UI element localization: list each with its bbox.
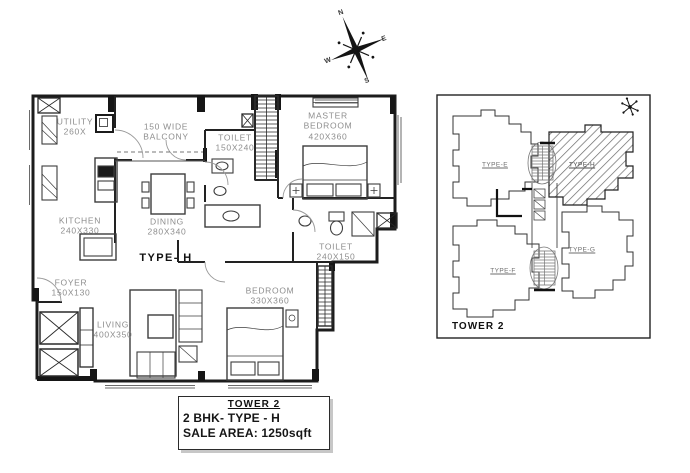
room-label-toilet-bottom: TOILET 240X150 xyxy=(317,242,356,263)
kitchen-dim: 240X330 xyxy=(59,226,101,236)
bedroom-dim: 330X360 xyxy=(246,296,295,306)
room-label-utility: UTILITY 260X xyxy=(57,117,94,138)
key-plan xyxy=(437,94,650,338)
keyplan-tower-label: TOWER 2 xyxy=(452,321,504,332)
living-dim: 400X350 xyxy=(94,330,133,340)
room-label-kitchen: KITCHEN 240X330 xyxy=(59,216,101,237)
toilet-top-dim: 150X240 xyxy=(216,143,255,153)
compass-rose xyxy=(317,5,397,91)
room-label-master-bedroom: MASTER BEDROOM 420X360 xyxy=(304,110,353,141)
kitchen-name: KITCHEN xyxy=(59,216,101,226)
balcony-line2: BALCONY xyxy=(143,132,189,142)
master-dim: 420X360 xyxy=(304,131,353,141)
toilet-bottom-dim: 240X150 xyxy=(317,252,356,262)
utility-dim: 260X xyxy=(57,127,94,137)
floorplan-linework xyxy=(0,0,690,473)
bedroom-name: BEDROOM xyxy=(246,286,295,296)
utility-appliance xyxy=(95,114,114,133)
keyplan-label-type-e: TYPE-E xyxy=(482,162,508,169)
toilet-bottom-name: TOILET xyxy=(317,242,356,252)
master-line2: BEDROOM xyxy=(304,121,353,131)
master-line1: MASTER xyxy=(304,110,353,120)
dining-name: DINING xyxy=(148,217,187,227)
floorplan-page: UTILITY 260X 150 WIDE BALCONY TOILET 150… xyxy=(0,0,690,473)
dining-dim: 280X340 xyxy=(148,227,187,237)
room-label-foyer: FOYER 150X130 xyxy=(52,278,91,299)
unit-info-box: TOWER 2 2 BHK- TYPE - H SALE AREA: 1250s… xyxy=(178,396,330,450)
staircase-right xyxy=(318,266,332,326)
room-label-dining: DINING 280X340 xyxy=(148,217,187,238)
room-label-balcony: 150 WIDE BALCONY xyxy=(143,122,189,143)
info-tower-label: TOWER 2 xyxy=(183,399,325,410)
keyplan-label-type-g: TYPE-G xyxy=(569,247,596,254)
staircase-top xyxy=(255,96,278,180)
keyplan-label-type-h: TYPE-H xyxy=(569,162,595,169)
room-label-living: LIVING 400X350 xyxy=(94,320,133,341)
foyer-dim: 150X130 xyxy=(52,288,91,298)
utility-name: UTILITY xyxy=(57,117,94,127)
living-name: LIVING xyxy=(94,320,133,330)
room-label-toilet-top: TOILET 150X240 xyxy=(216,133,255,154)
room-label-bedroom: BEDROOM 330X360 xyxy=(246,286,295,307)
foyer-name: FOYER xyxy=(52,278,91,288)
info-bhk-label: 2 BHK- TYPE - H xyxy=(183,411,325,425)
main-type-label: TYPE- H xyxy=(139,252,192,264)
toilet-top-name: TOILET xyxy=(216,133,255,143)
info-area-label: SALE AREA: 1250sqft xyxy=(183,426,325,440)
keyplan-label-type-f: TYPE-F xyxy=(490,268,516,275)
balcony-line1: 150 WIDE xyxy=(143,122,189,132)
